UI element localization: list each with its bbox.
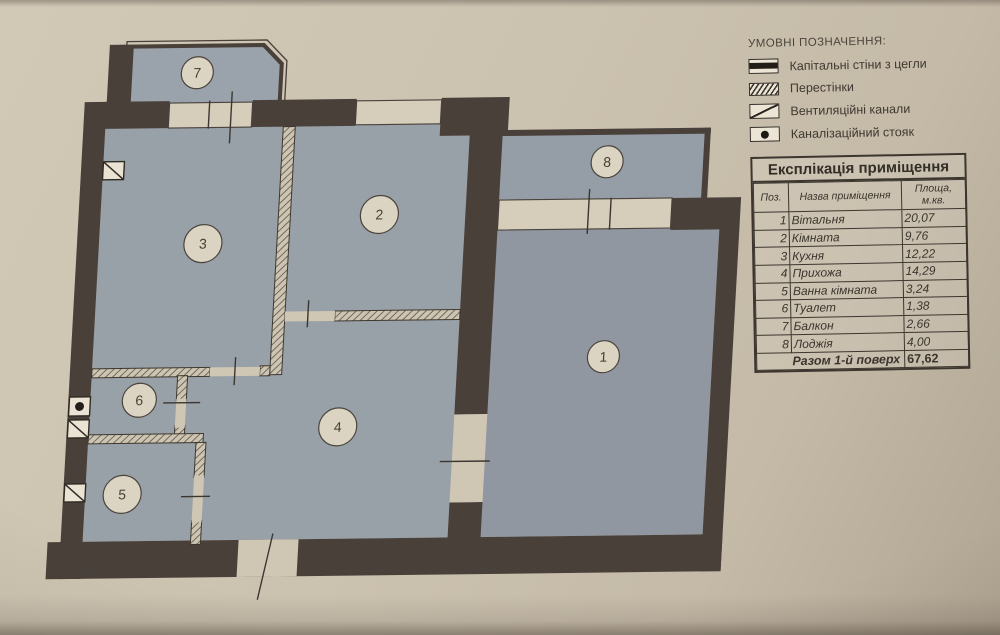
- cell-pos: 6: [756, 300, 791, 318]
- cell-pos: 5: [755, 282, 790, 300]
- brick-wall-icon: [748, 58, 778, 74]
- legend-item-label: Каналізаційний стояк: [791, 124, 914, 140]
- cell-area: 1,38: [904, 296, 968, 315]
- table-total-row: Разом 1-й поверх 67,62: [757, 349, 969, 371]
- cell-pos: 3: [755, 247, 790, 265]
- svg-text:6: 6: [135, 392, 144, 408]
- cell-area: 14,29: [903, 261, 967, 280]
- window-room8: [497, 198, 672, 230]
- svg-text:3: 3: [199, 236, 208, 252]
- cell-name: Вітальня: [789, 210, 902, 230]
- photo-background: 7 3 2 8 1: [0, 0, 1000, 635]
- cell-pos: 8: [756, 335, 791, 353]
- cell-area: 3,24: [903, 279, 967, 298]
- svg-text:4: 4: [333, 419, 342, 435]
- cell-pos: 2: [754, 229, 789, 247]
- cell-name: Туалет: [791, 298, 904, 318]
- cell-pos: 1: [754, 212, 789, 230]
- explication-table: Експлікація приміщення Поз. Назва приміщ…: [750, 153, 970, 374]
- cell-area: 9,76: [902, 226, 966, 245]
- cell-name: Кухня: [790, 245, 903, 265]
- sewer-riser-icon: [750, 126, 780, 142]
- legend-item: Каналізаційний стояк: [750, 122, 986, 142]
- window-room7: [168, 102, 252, 128]
- legend-item-label: Перестінки: [790, 80, 854, 95]
- vent-channel-icon: [102, 162, 124, 180]
- legend-title: УМОВНІ ПОЗНАЧЕННЯ:: [748, 33, 984, 50]
- total-label: Разом 1-й поверх: [757, 350, 905, 370]
- col-header-pos: Поз.: [753, 183, 789, 213]
- cell-area: 20,07: [902, 208, 966, 227]
- legend-item: Капітальні стіни з цегли: [748, 54, 984, 74]
- total-value: 67,62: [905, 349, 969, 368]
- svg-text:2: 2: [375, 206, 384, 222]
- cell-pos: 4: [755, 265, 790, 283]
- vent-channel-icon: [67, 420, 89, 438]
- legend-item-label: Вентиляційні канали: [790, 101, 910, 117]
- cell-name: Ванна кімната: [790, 280, 903, 300]
- cell-area: 2,66: [904, 314, 968, 333]
- legend-item-label: Капітальні стіни з цегли: [789, 56, 926, 73]
- svg-text:5: 5: [118, 486, 127, 502]
- partition-icon: [749, 82, 779, 96]
- vent-channel-icon: [749, 103, 779, 119]
- window-room2: [355, 100, 441, 125]
- svg-text:8: 8: [603, 154, 612, 170]
- legend-item: Вентиляційні канали: [749, 99, 985, 119]
- sewer-riser-icon: [69, 397, 91, 416]
- right-panel: УМОВНІ ПОЗНАЧЕННЯ: Капітальні стіни з це…: [748, 33, 990, 373]
- cell-name: Балкон: [791, 315, 904, 335]
- cell-name: Кімната: [789, 227, 902, 247]
- table-header-row: Поз. Назва приміщення Площа, м.кв.: [753, 179, 966, 212]
- vent-channel-icon: [64, 484, 86, 502]
- floor-plan: 7 3 2 8 1: [0, 0, 760, 635]
- col-header-area: Площа, м.кв.: [901, 179, 966, 209]
- col-header-name: Назва приміщення: [788, 181, 902, 212]
- cell-area: 12,22: [903, 244, 967, 263]
- cell-name: Прихожа: [790, 262, 903, 282]
- svg-text:1: 1: [599, 349, 608, 365]
- cell-name: Лоджія: [791, 333, 904, 353]
- legend-item: Перестінки: [749, 77, 985, 96]
- legend: УМОВНІ ПОЗНАЧЕННЯ: Капітальні стіни з це…: [748, 33, 986, 142]
- cell-area: 4,00: [904, 332, 968, 351]
- svg-text:7: 7: [193, 65, 202, 81]
- cell-pos: 7: [756, 317, 791, 335]
